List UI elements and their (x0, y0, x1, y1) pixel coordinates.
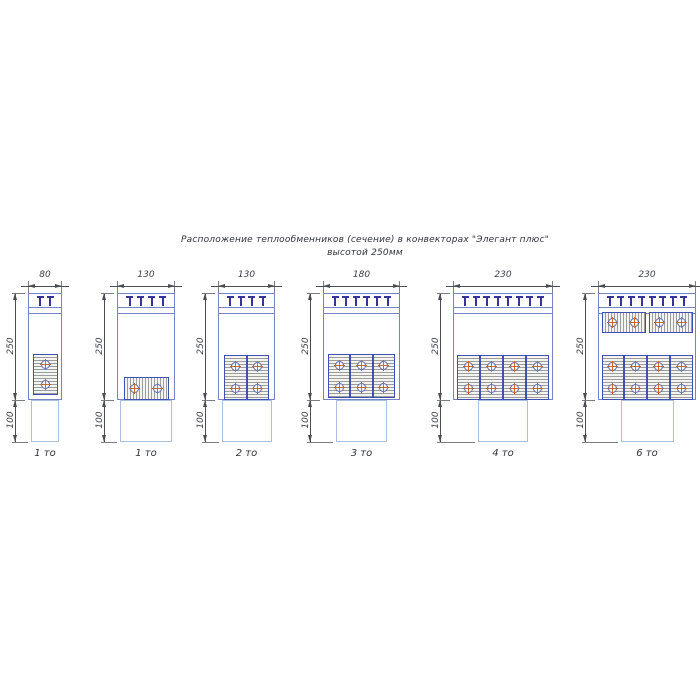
grille-t-icon (342, 296, 349, 306)
grille-line (323, 307, 400, 308)
grille-t-stem (683, 296, 685, 306)
grille-t-icon (607, 296, 614, 306)
grille-t-icon (680, 296, 687, 306)
grille-line (117, 313, 175, 314)
grille-t-stem (39, 296, 41, 306)
grille-t-stem (366, 296, 368, 306)
tube-cross-icon (339, 360, 340, 371)
figure-caption: 2 то (222, 448, 272, 459)
tube-cross-icon (514, 383, 515, 394)
dimension-arrow (168, 284, 175, 288)
figure-caption: 3 то (337, 448, 387, 459)
drawing-title-line2: высотой 250мм (150, 247, 580, 260)
tube-cross-icon (361, 382, 362, 393)
grille-line (28, 307, 62, 308)
grille-t-stem (641, 296, 643, 306)
grille-t-icon (505, 296, 512, 306)
height-dimension-label-100: 100 (95, 408, 105, 432)
dimension-arrow (453, 284, 460, 288)
grille-t-icon (494, 296, 501, 306)
extension-line (582, 442, 618, 443)
tube-cross-icon (537, 361, 538, 372)
dimension-arrow (323, 284, 330, 288)
exchanger-column-divider (669, 355, 671, 400)
height-dimension-label-250: 250 (576, 334, 586, 358)
grille-t-stem (129, 296, 131, 306)
tube-cross-icon (491, 383, 492, 394)
extension-line (437, 442, 475, 443)
dimension-arrow (438, 435, 442, 442)
pedestal-outline (120, 400, 172, 442)
grille-t-stem (620, 296, 622, 306)
tube-cross-icon (612, 383, 613, 394)
grille-t-icon (37, 296, 44, 306)
pedestal-outline (336, 400, 387, 442)
tube-cross-icon (235, 383, 236, 394)
grille-t-stem (229, 296, 231, 306)
grille-t-icon (248, 296, 255, 306)
height-dimension-label-100: 100 (431, 408, 441, 432)
width-dimension-label: 130 (208, 270, 285, 280)
grille-t-icon (47, 296, 54, 306)
dimension-arrow (203, 293, 207, 300)
grille-t-icon (617, 296, 624, 306)
pedestal-outline (621, 400, 674, 442)
tube-cross-icon (612, 317, 613, 328)
figure-caption: 4 то (478, 448, 528, 459)
grille-t-stem (162, 296, 164, 306)
grille-t-stem (355, 296, 357, 306)
tube-cross-icon (468, 361, 469, 372)
tube-cross-icon (157, 383, 158, 394)
grille-line (218, 307, 275, 308)
dimension-arrow (203, 400, 207, 407)
dimension-arrow (308, 435, 312, 442)
grille-t-stem (672, 296, 674, 306)
grille-t-stem (251, 296, 253, 306)
extension-line (12, 442, 28, 443)
tube-cross-icon (45, 359, 46, 370)
grille-line (323, 313, 400, 314)
tube-cross-icon (681, 383, 682, 394)
grille-t-icon (238, 296, 245, 306)
grille-t-icon (353, 296, 360, 306)
tube-cross-icon (339, 382, 340, 393)
height-dimension-label-250: 250 (95, 334, 105, 358)
grille-t-stem (334, 296, 336, 306)
grille-t-stem (529, 296, 531, 306)
grille-t-icon (332, 296, 339, 306)
tube-cross-icon (468, 383, 469, 394)
grille-t-icon (516, 296, 523, 306)
dimension-arrow (117, 284, 124, 288)
tube-cross-icon (235, 361, 236, 372)
grille-t-icon (628, 296, 635, 306)
tube-cross-icon (514, 361, 515, 372)
dimension-arrow (13, 393, 17, 400)
tube-cross-icon (612, 361, 613, 372)
exchanger-column-divider (646, 355, 648, 400)
grille-t-icon (384, 296, 391, 306)
dimension-arrow (438, 293, 442, 300)
width-dimension-line (591, 286, 700, 287)
tube-cross-icon (257, 361, 258, 372)
exchanger-column-divider (246, 355, 248, 400)
dimension-arrow (308, 393, 312, 400)
drawing-title-line1: Расположение теплообменников (сечение) в… (150, 234, 580, 247)
dimension-arrow (13, 293, 17, 300)
figure-caption: 6 то (622, 448, 672, 459)
width-dimension-label: 80 (18, 270, 72, 280)
grille-line (117, 307, 175, 308)
width-dimension-label: 130 (107, 270, 185, 280)
grille-t-stem (464, 296, 466, 306)
grille-t-icon (526, 296, 533, 306)
tube-cross-icon (257, 383, 258, 394)
height-dimension-label-250: 250 (6, 334, 16, 358)
extension-line (101, 442, 117, 443)
pedestal-outline (31, 400, 59, 442)
extension-line (202, 442, 219, 443)
grille-t-icon (462, 296, 469, 306)
dimension-arrow (102, 435, 106, 442)
dimension-arrow (438, 393, 442, 400)
tube-cross-icon (658, 383, 659, 394)
height-dimension-label-250: 250 (431, 334, 441, 358)
dimension-arrow (13, 435, 17, 442)
grille-t-stem (387, 296, 389, 306)
dimension-arrow (13, 400, 17, 407)
tube-cross-icon (134, 383, 135, 394)
grille-t-icon (659, 296, 666, 306)
dimension-arrow (546, 284, 553, 288)
height-dimension-label-100: 100 (301, 408, 311, 432)
exchanger-column-divider (349, 354, 351, 398)
dimension-arrow (308, 400, 312, 407)
grille-t-stem (376, 296, 378, 306)
dimension-arrow (55, 284, 62, 288)
tube-cross-icon (681, 317, 682, 328)
pedestal-outline (478, 400, 528, 442)
exchanger-column-divider (502, 355, 504, 400)
tube-cross-icon (491, 361, 492, 372)
grille-t-icon (483, 296, 490, 306)
tube-cross-icon (383, 360, 384, 371)
dimension-arrow (203, 393, 207, 400)
exchanger-column-divider (479, 355, 481, 400)
exchanger-column-divider (372, 354, 374, 398)
grille-t-stem (240, 296, 242, 306)
height-dimension-label-100: 100 (6, 408, 16, 432)
dimension-arrow (268, 284, 275, 288)
grille-t-stem (609, 296, 611, 306)
height-dimension-label-100: 100 (576, 408, 586, 432)
dimension-arrow (102, 393, 106, 400)
exchanger-column-divider (623, 355, 625, 400)
grille-t-stem (497, 296, 499, 306)
grille-t-stem (651, 296, 653, 306)
dimension-arrow (308, 293, 312, 300)
tube-cross-icon (659, 317, 660, 328)
grille-t-icon (537, 296, 544, 306)
tube-cross-icon (658, 361, 659, 372)
drawing-title: Расположение теплообменников (сечение) в… (150, 234, 580, 260)
height-dimension-label-250: 250 (196, 334, 206, 358)
exchanger-column-divider (525, 355, 527, 400)
pedestal-outline (222, 400, 272, 442)
tube-cross-icon (635, 383, 636, 394)
tube-cross-icon (45, 379, 46, 390)
dimension-arrow (583, 393, 587, 400)
height-dimension-label-100: 100 (196, 408, 206, 432)
tube-cross-icon (383, 382, 384, 393)
dimension-arrow (689, 284, 696, 288)
grille-t-stem (345, 296, 347, 306)
grille-line (218, 313, 275, 314)
grille-t-stem (262, 296, 264, 306)
dimension-arrow (583, 400, 587, 407)
grille-t-stem (507, 296, 509, 306)
grille-t-icon (126, 296, 133, 306)
dimension-arrow (218, 284, 225, 288)
grille-line (28, 313, 62, 314)
width-dimension-line (446, 286, 560, 287)
grille-t-stem (486, 296, 488, 306)
dimension-arrow (438, 400, 442, 407)
dimension-arrow (393, 284, 400, 288)
extension-line (307, 442, 333, 443)
grille-t-stem (540, 296, 542, 306)
width-dimension-label: 180 (313, 270, 410, 280)
width-dimension-label: 230 (588, 270, 700, 280)
figure-caption: 1 то (20, 448, 70, 459)
grille-t-icon (159, 296, 166, 306)
dimension-arrow (203, 435, 207, 442)
dimension-arrow (598, 284, 605, 288)
grille-t-icon (259, 296, 266, 306)
drawing-canvas: Расположение теплообменников (сечение) в… (0, 0, 700, 700)
grille-t-icon (670, 296, 677, 306)
tube-cross-icon (361, 360, 362, 371)
tube-cross-icon (681, 361, 682, 372)
grille-line (453, 307, 553, 308)
grille-t-stem (140, 296, 142, 306)
dimension-arrow (583, 293, 587, 300)
tube-cross-icon (635, 361, 636, 372)
grille-t-icon (363, 296, 370, 306)
grille-t-stem (475, 296, 477, 306)
grille-t-icon (374, 296, 381, 306)
dimension-arrow (102, 293, 106, 300)
tube-cross-icon (537, 383, 538, 394)
dimension-arrow (102, 400, 106, 407)
dimension-arrow (583, 435, 587, 442)
grille-line (598, 307, 696, 308)
grille-t-icon (473, 296, 480, 306)
grille-t-stem (49, 296, 51, 306)
dimension-arrow (28, 284, 35, 288)
grille-t-icon (137, 296, 144, 306)
figure-caption: 1 то (121, 448, 171, 459)
tube-cross-icon (634, 317, 635, 328)
grille-t-icon (638, 296, 645, 306)
height-dimension-label-250: 250 (301, 334, 311, 358)
grille-t-icon (649, 296, 656, 306)
grille-t-stem (662, 296, 664, 306)
width-dimension-label: 230 (443, 270, 563, 280)
grille-t-icon (148, 296, 155, 306)
grille-t-stem (630, 296, 632, 306)
grille-t-stem (151, 296, 153, 306)
grille-t-stem (518, 296, 520, 306)
grille-t-icon (227, 296, 234, 306)
grille-line (453, 313, 553, 314)
